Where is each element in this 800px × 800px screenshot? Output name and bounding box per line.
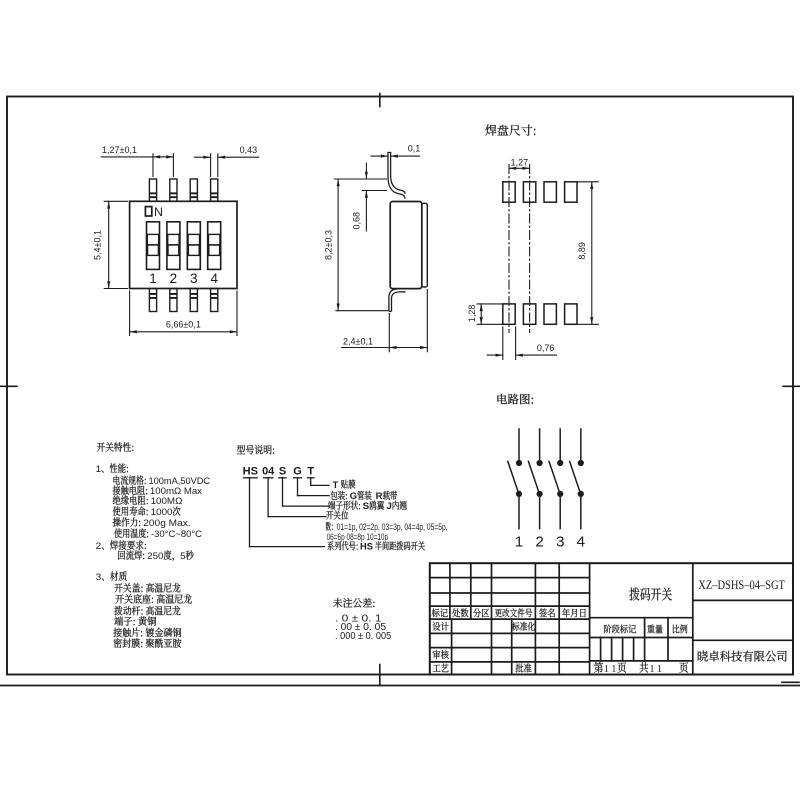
svg-text:N: N [154,205,163,219]
svg-text:100mΩ Max: 100mΩ Max [150,486,203,496]
svg-text:6,66±0,1: 6,66±0,1 [166,319,201,329]
svg-text:HS: HS [243,466,258,478]
svg-text:0,1: 0,1 [408,144,421,154]
svg-text:1 1: 1 1 [650,664,663,675]
svg-text:3: 3 [556,533,564,550]
svg-text:HS: HS [360,542,373,553]
svg-text:100mA,50VDC: 100mA,50VDC [149,476,211,486]
svg-text:R: R [376,491,383,502]
svg-text:01=1p, 02=2p, 03=3p, 04=4p, 05: 01=1p, 02=2p, 03=3p, 04=4p, 05=5p, [337,522,448,532]
svg-text:1: 1 [515,533,523,550]
svg-text:G: G [293,466,302,478]
svg-text:4: 4 [577,533,585,550]
svg-text:1: 1 [149,271,157,286]
svg-text:1,27±0,1: 1,27±0,1 [102,145,137,155]
svg-text:1,28: 1,28 [467,305,477,323]
svg-text:5: 5 [180,551,185,561]
svg-text:S: S [279,466,286,478]
svg-text:1000: 1000 [151,507,173,517]
svg-text:250: 250 [147,551,163,561]
svg-text:8,2±0,3: 8,2±0,3 [323,230,333,260]
svg-text:3: 3 [96,572,102,582]
svg-text:T: T [333,480,339,491]
svg-text:XZ–DSHS–04–SGT: XZ–DSHS–04–SGT [698,577,785,592]
svg-text:2: 2 [535,533,543,550]
svg-text:G: G [350,491,357,502]
svg-text:3: 3 [190,271,198,286]
svg-text:1 1: 1 1 [604,664,617,675]
svg-text:4: 4 [210,271,218,286]
svg-text:T: T [307,466,314,478]
svg-text:-30°C~80°C: -30°C~80°C [151,529,203,539]
svg-text:06=6p 08=8p 10=10p: 06=6p 08=8p 10=10p [327,532,389,542]
svg-text:04: 04 [262,466,275,478]
svg-text:0,43: 0,43 [240,145,258,155]
svg-text:0,76: 0,76 [537,343,555,353]
svg-text:2: 2 [96,541,102,551]
svg-text:8,89: 8,89 [577,242,587,260]
svg-text:200g Max.: 200g Max. [143,518,190,528]
svg-text:100MΩ: 100MΩ [151,496,183,506]
svg-text:2,4±0,1: 2,4±0,1 [343,337,373,347]
svg-text:J: J [386,501,392,512]
svg-text:0,68: 0,68 [352,212,362,230]
svg-text:S: S [363,501,370,512]
svg-text:1,27: 1,27 [511,158,529,168]
svg-text:. 000 ± 0. 005: . 000 ± 0. 005 [335,631,392,642]
svg-text:2: 2 [170,271,178,286]
svg-text:5,4±0,1: 5,4±0,1 [93,230,103,260]
svg-text:1: 1 [96,464,102,474]
